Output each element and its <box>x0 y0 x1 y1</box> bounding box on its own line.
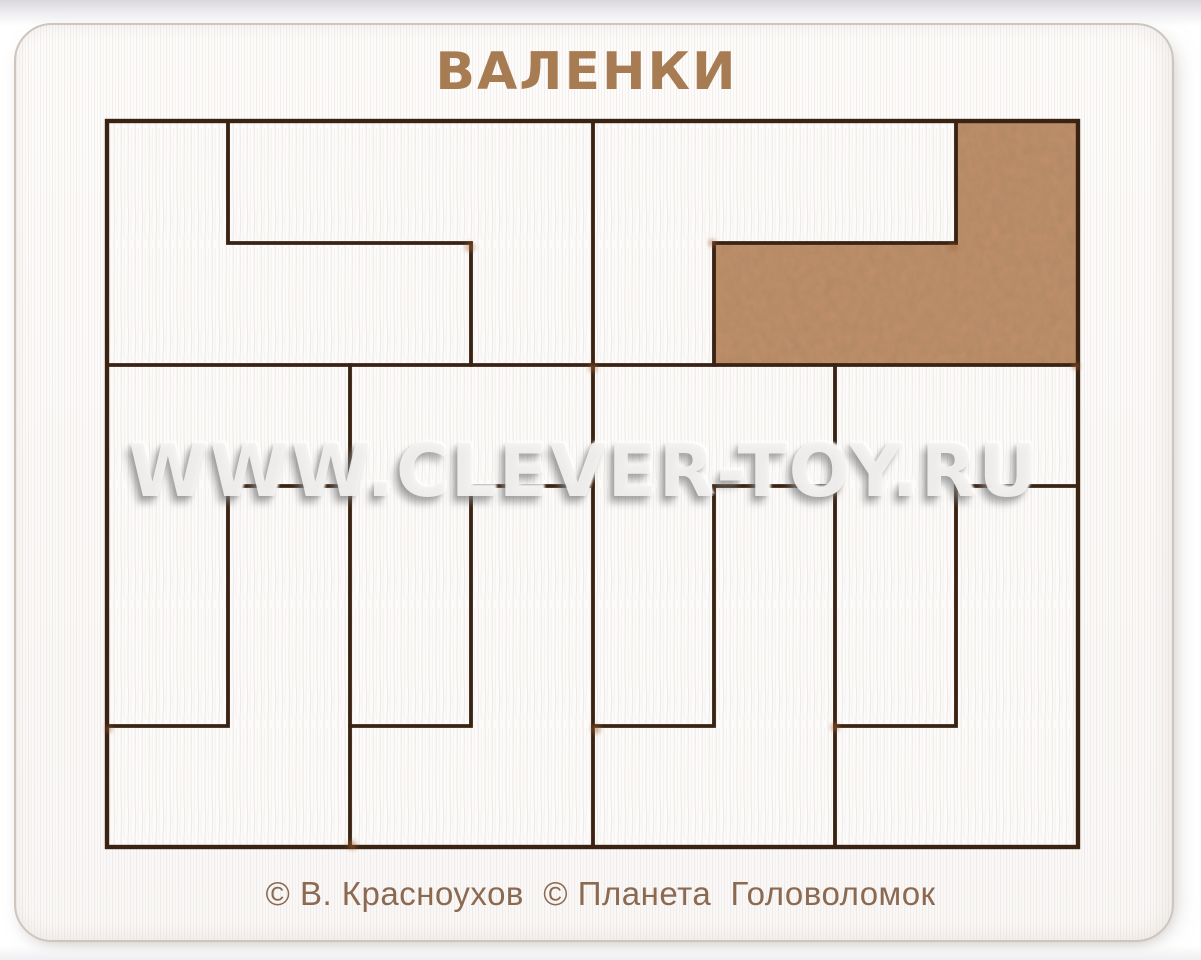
burn-mark <box>465 242 475 252</box>
burn-mark <box>949 243 957 251</box>
product-title: ВАЛЕНКИ <box>0 45 1187 101</box>
product-photo: ВАЛЕНКИ WWW.CLEVER-TOY.RU © В. Красноухо… <box>0 0 1201 960</box>
burn-mark <box>591 724 601 734</box>
burn-mark <box>347 840 357 850</box>
burn-mark <box>708 239 716 247</box>
copyright-line: © В. Красноухов © Планета Головоломок <box>0 876 1201 916</box>
burn-mark <box>106 726 113 733</box>
burn-mark <box>1072 362 1080 370</box>
burn-mark <box>831 723 840 732</box>
burn-mark <box>589 364 598 373</box>
watermark-text: WWW.CLEVER-TOY.RU <box>0 427 1184 515</box>
